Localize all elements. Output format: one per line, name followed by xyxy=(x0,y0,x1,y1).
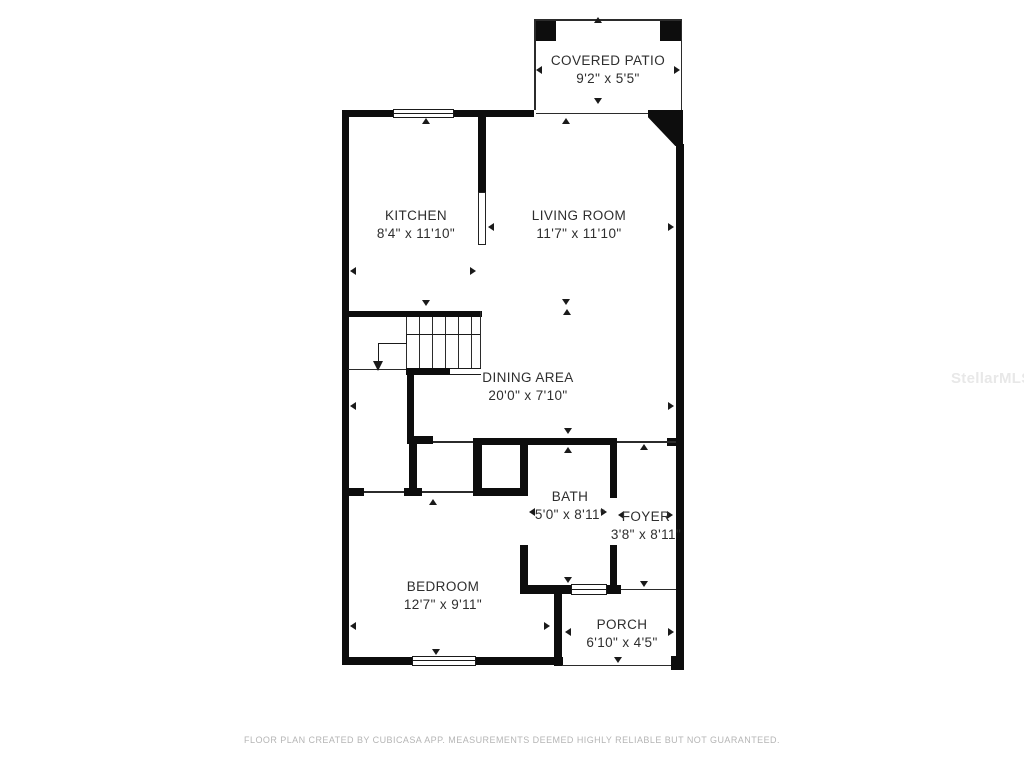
dimension-arrow-left xyxy=(350,267,356,275)
wall-left xyxy=(342,110,349,665)
staircase-walkline xyxy=(378,343,379,363)
window-kitchen xyxy=(393,109,454,119)
room-name: DINING AREA xyxy=(482,369,573,387)
wall-right xyxy=(676,144,684,670)
room-label-living-room: LIVING ROOM 11'7" x 11'10" xyxy=(532,207,626,243)
dimension-arrow-left xyxy=(350,402,356,410)
wall-bath-left xyxy=(520,444,528,496)
room-dimensions: 8'4" x 11'10" xyxy=(377,225,455,243)
dimension-arrow-up xyxy=(564,447,572,453)
dimension-arrow-up xyxy=(594,17,602,23)
dimension-arrow-right xyxy=(668,223,674,231)
dimension-arrow-left xyxy=(350,622,356,630)
dimension-arrow-right xyxy=(668,402,674,410)
room-name: KITCHEN xyxy=(377,207,455,225)
porch-edge-bottom xyxy=(562,665,676,667)
room-dimensions: 3'8" x 8'11" xyxy=(611,526,681,544)
stellar-mls-watermark: StellarMLS xyxy=(951,370,1024,387)
porch-corner-block xyxy=(671,656,684,670)
wall-bedroom-top xyxy=(404,488,422,496)
wall-bedroom-top xyxy=(342,488,364,496)
dimension-arrow-up xyxy=(640,444,648,450)
wall-hall-vertical xyxy=(407,372,414,438)
wall-kitchen-divider xyxy=(478,112,486,192)
dimension-arrow-left xyxy=(488,223,494,231)
floor-plan: COVERED PATIO 9'2" x 5'5" KITCHEN 8'4" x… xyxy=(0,0,1024,768)
patio-corner-post-left xyxy=(534,19,556,41)
wall-bath-left xyxy=(520,545,528,590)
patio-slider-opening xyxy=(536,113,648,115)
opening-foyer-porch xyxy=(621,589,676,591)
dimension-arrow-up xyxy=(429,499,437,505)
window-bath xyxy=(571,584,607,595)
window-bedroom xyxy=(412,656,476,666)
dimension-arrow-down xyxy=(564,428,572,434)
door-opening-bedroom-right xyxy=(422,491,473,493)
staircase-down-arrow xyxy=(373,361,383,371)
wall-porch-left xyxy=(554,593,562,666)
door-leaf-kitchen xyxy=(478,192,486,245)
patio-edge-right xyxy=(681,19,683,110)
patio-edge-left xyxy=(534,19,536,110)
room-name: BATH xyxy=(535,488,605,506)
room-dimensions: 20'0" x 7'10" xyxy=(482,387,573,405)
room-name: FOYER xyxy=(611,508,681,526)
room-label-dining-area: DINING AREA 20'0" x 7'10" xyxy=(482,369,573,405)
staircase-treads xyxy=(406,317,481,368)
staircase-edge xyxy=(480,311,481,375)
room-dimensions: 12'7" x 9'11" xyxy=(404,596,482,614)
room-dimensions: 5'0" x 8'11" xyxy=(535,506,605,524)
room-dimensions: 9'2" x 5'5" xyxy=(551,70,665,88)
opening-foyer-top xyxy=(617,441,676,443)
room-name: BEDROOM xyxy=(404,578,482,596)
patio-edge-top xyxy=(534,19,682,21)
wall-vestibule-left xyxy=(409,444,417,489)
footer-disclaimer: FLOOR PLAN CREATED BY CUBICASA APP. MEAS… xyxy=(244,735,780,745)
dimension-arrow-up xyxy=(422,118,430,124)
room-label-kitchen: KITCHEN 8'4" x 11'10" xyxy=(377,207,455,243)
wall-bath-right xyxy=(610,444,617,498)
patio-corner-post-right xyxy=(660,19,682,41)
room-label-bedroom: BEDROOM 12'7" x 9'11" xyxy=(404,578,482,614)
wall-vestibule-right xyxy=(473,444,482,489)
dimension-arrow-right xyxy=(668,628,674,636)
dimension-arrow-down xyxy=(614,657,622,663)
dimension-arrow-right xyxy=(470,267,476,275)
room-label-foyer: FOYER 3'8" x 8'11" xyxy=(611,508,681,544)
dimension-arrow-right xyxy=(674,66,680,74)
dimension-arrow-down xyxy=(640,581,648,587)
room-name: LIVING ROOM xyxy=(532,207,626,225)
wall-corner-diagonal xyxy=(648,110,683,146)
staircase-walkline xyxy=(378,343,407,344)
door-opening-vestibule xyxy=(433,441,473,443)
dimension-arrow-down xyxy=(422,300,430,306)
dimension-arrow-up xyxy=(563,309,571,315)
room-name: PORCH xyxy=(586,616,657,634)
room-label-bath: BATH 5'0" x 8'11" xyxy=(535,488,605,524)
wall-hall-stub xyxy=(407,436,433,444)
dimension-arrow-up xyxy=(562,118,570,124)
dimension-arrow-right xyxy=(544,622,550,630)
door-opening-bedroom-left xyxy=(364,491,404,493)
room-dimensions: 6'10" x 4'5" xyxy=(586,634,657,652)
room-label-porch: PORCH 6'10" x 4'5" xyxy=(586,616,657,652)
room-dimensions: 11'7" x 11'10" xyxy=(532,225,626,243)
dimension-arrow-down xyxy=(562,299,570,305)
dimension-arrow-left xyxy=(565,628,571,636)
dimension-arrow-down xyxy=(594,98,602,104)
room-label-covered-patio: COVERED PATIO 9'2" x 5'5" xyxy=(551,52,665,88)
wall-bath-top xyxy=(473,438,617,445)
room-name: COVERED PATIO xyxy=(551,52,665,70)
dimension-arrow-down xyxy=(564,577,572,583)
staircase-railing xyxy=(450,368,481,375)
staircase-walkline xyxy=(406,334,480,335)
dimension-arrow-left xyxy=(536,66,542,74)
dimension-arrow-down xyxy=(432,649,440,655)
